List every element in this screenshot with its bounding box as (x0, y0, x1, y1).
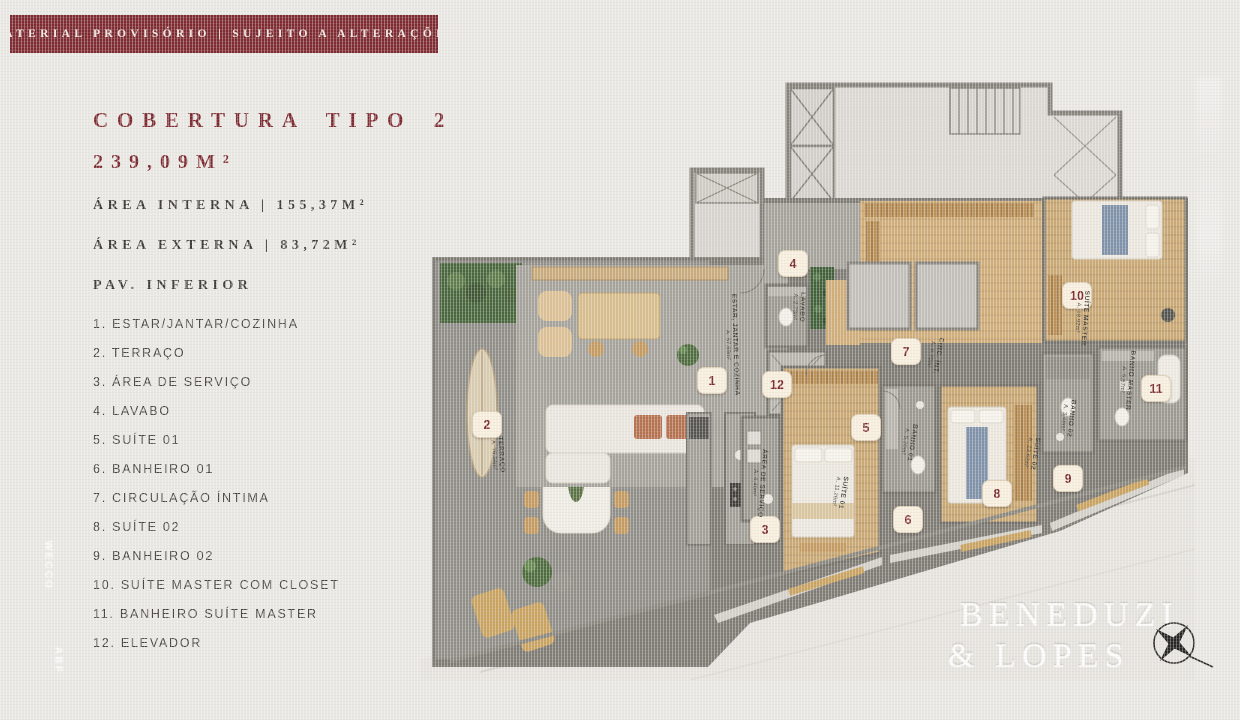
floor-plan: 123456789101112ESTAR, JANTAR E COZINHAA.… (420, 55, 1195, 680)
lavabo-room (766, 285, 808, 347)
total-area: 239,09M² (93, 151, 423, 174)
unit-info-panel: COBERTURA TIPO 2 239,09M² ÁREA INTERNA |… (93, 108, 423, 666)
area-interna: ÁREA INTERNA | 155,37M² (93, 198, 423, 214)
area-externa: ÁREA EXTERNA | 83,72M² (93, 238, 423, 254)
legend-item: 4. LAVABO (93, 405, 423, 418)
suite-01 (782, 367, 880, 575)
legend-item: 7. CIRCULAÇÃO ÍNTIMA (93, 492, 423, 505)
legend-item: 2. TERRAÇO (93, 347, 423, 360)
legend-item: 9. BANHEIRO 02 (93, 550, 423, 563)
suite-master (1044, 198, 1186, 342)
floor-label: PAV. INFERIOR (93, 278, 423, 294)
compass-icon (1142, 616, 1216, 674)
legend-item: 1. ESTAR/JANTAR/COZINHA (93, 318, 423, 331)
banho-01 (882, 385, 936, 493)
marketing-page: MATERIAL PROVISÓRIO | SUJEITO A ALTERAÇÕ… (0, 0, 1240, 720)
banho-master (1098, 347, 1186, 441)
legend-item: 10. SUÍTE MASTER COM CLOSET (93, 579, 423, 592)
corner-watermark (1196, 78, 1222, 288)
vertical-logo-2: ABF (53, 621, 64, 701)
banho-02 (1042, 353, 1094, 453)
vertical-logo-1: WECCO (43, 526, 54, 606)
provisional-material-banner: MATERIAL PROVISÓRIO | SUJEITO A ALTERAÇÕ… (10, 15, 438, 53)
service-area (742, 417, 780, 521)
room-legend: 1. ESTAR/JANTAR/COZINHA2. TERRAÇO3. ÁREA… (93, 318, 423, 650)
banner-text: MATERIAL PROVISÓRIO | SUJEITO A ALTERAÇÕ… (0, 28, 459, 40)
suite-02 (940, 385, 1038, 523)
legend-item: 11. BANHEIRO SUÍTE MASTER (93, 608, 423, 621)
legend-item: 8. SUÍTE 02 (93, 521, 423, 534)
legend-item: 5. SUÍTE 01 (93, 434, 423, 447)
floor-plan-drawing (420, 55, 1195, 680)
legend-item: 6. BANHEIRO 01 (93, 463, 423, 476)
legend-item: 3. ÁREA DE SERVIÇO (93, 376, 423, 389)
page-title: COBERTURA TIPO 2 (93, 108, 423, 133)
legend-item: 12. ELEVADOR (93, 637, 423, 650)
